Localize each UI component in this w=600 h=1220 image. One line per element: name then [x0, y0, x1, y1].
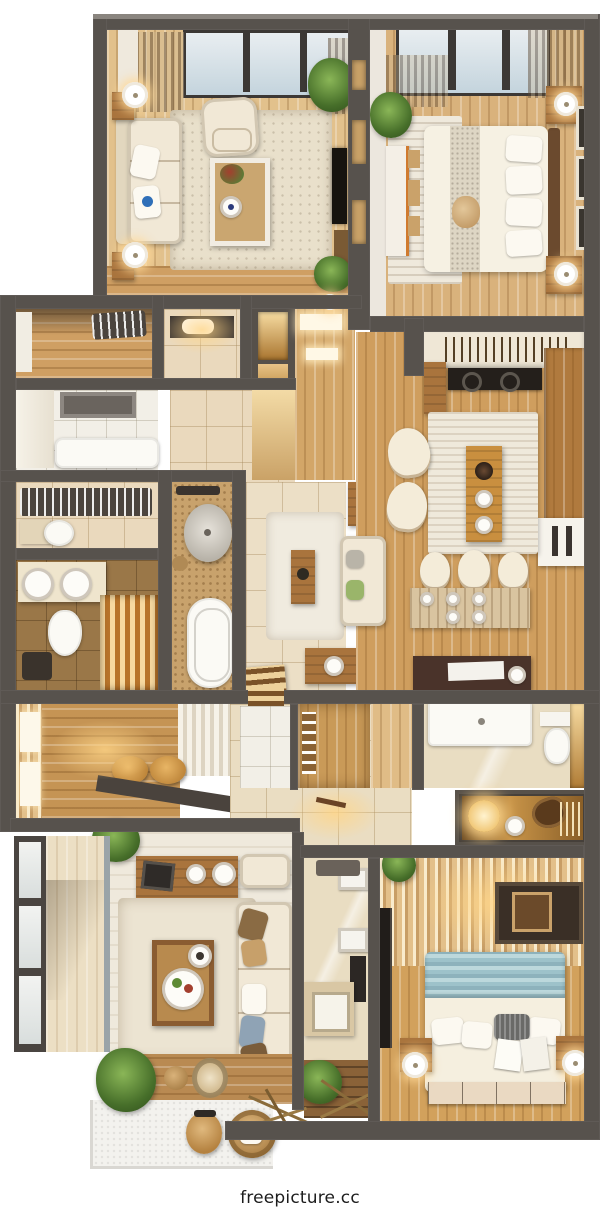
- deck-pot: [164, 1066, 188, 1090]
- floor-lamp: [122, 242, 148, 268]
- window-mullion: [502, 26, 510, 90]
- window-mullion: [448, 26, 456, 90]
- lounge-pillow-gray: [346, 550, 364, 568]
- bed2-teal-blanket: [425, 952, 565, 998]
- wall-outer-left-top: [93, 14, 107, 309]
- closet-ottoman: [44, 520, 74, 546]
- sofa-seam: [238, 968, 290, 970]
- balcony-glass: [19, 842, 41, 898]
- wall-outer-right: [584, 14, 600, 1140]
- potted-plant: [298, 1060, 342, 1104]
- hallway-floor: [295, 309, 355, 480]
- watermark-text: freepicture.cc: [240, 1188, 360, 1208]
- fruit-dots: [172, 978, 182, 988]
- bed-pillow: [505, 229, 543, 257]
- sofa-pillow-tan: [240, 938, 267, 967]
- door-panel-lit: [20, 712, 40, 752]
- floor-lamp: [122, 82, 148, 108]
- fruit-basket: [162, 968, 204, 1010]
- pouf-dark-band: [194, 1110, 216, 1117]
- balcony-glass: [19, 976, 41, 1044]
- decor-plate: [324, 656, 344, 676]
- wall-h-bedroom2-bottom: [225, 1121, 600, 1140]
- deck-vase: [192, 1058, 228, 1098]
- bonsai-dot: [297, 568, 309, 580]
- lounge-cushion-green: [346, 580, 364, 600]
- lit-shelf-unit: [100, 595, 158, 690]
- burner: [462, 372, 482, 392]
- stairs-doorway: [248, 688, 284, 706]
- toilet: [48, 610, 82, 656]
- pantry-lit-niche: [258, 312, 288, 360]
- tray-center-dot: [228, 204, 234, 210]
- ceiling-light-panel: [306, 348, 338, 360]
- wall-art: [408, 216, 420, 236]
- table-lamp: [402, 1052, 428, 1078]
- desk-plate: [212, 862, 236, 886]
- table-plant: [220, 164, 244, 184]
- plate: [446, 610, 460, 624]
- bottle-row: [560, 802, 582, 836]
- balcony-shadow: [46, 880, 104, 1000]
- wall: [290, 704, 298, 790]
- plate: [472, 592, 486, 606]
- wall-h-closet-top: [0, 470, 246, 482]
- wall-entry-powder: [152, 295, 164, 390]
- bath-mat: [22, 652, 52, 680]
- divider-shelf-niche: [352, 200, 366, 244]
- living-room-window-mullion: [243, 30, 250, 92]
- cabinet-handle: [566, 526, 572, 556]
- laptop: [141, 860, 176, 891]
- shower-drain-dot: [204, 529, 211, 536]
- sofa-pillow-white: [242, 984, 266, 1014]
- closet-hanger-rail: [20, 488, 152, 516]
- appliance-box: [338, 928, 368, 952]
- console-mirror: [448, 661, 505, 681]
- art-niche-frame: [512, 892, 552, 932]
- headboard: [548, 128, 560, 272]
- toilet-tank: [540, 712, 574, 726]
- bed2-pillow: [431, 1016, 466, 1045]
- wall-art: [408, 150, 420, 168]
- divider-shelf-niche: [352, 120, 366, 164]
- rattan-pouf: [186, 1112, 222, 1154]
- pillow-blue-dot: [142, 196, 153, 207]
- storage-basket: [150, 756, 186, 784]
- wall-v-family-bedroom2: [292, 832, 304, 1110]
- wardrobe: [386, 146, 409, 256]
- wall-h-below-living: [0, 295, 362, 309]
- dining-chair: [498, 552, 528, 590]
- plate: [446, 592, 460, 606]
- laundry-wall-panel: [16, 390, 54, 468]
- sofa: [128, 118, 182, 244]
- fur-throw: [452, 196, 480, 228]
- hall-wood-strip: [371, 704, 412, 788]
- towel-rack: [302, 712, 316, 774]
- coat-rack: [91, 310, 147, 340]
- bathtub-inner-line: [194, 608, 230, 682]
- toilet: [544, 728, 570, 764]
- serving-bowl: [475, 516, 493, 534]
- serving-bowl: [475, 490, 493, 508]
- potted-plant: [370, 92, 412, 138]
- burner: [500, 372, 520, 392]
- entry-door-panel: [16, 312, 32, 372]
- gray-mat: [316, 860, 360, 876]
- niche-dish: [505, 816, 525, 836]
- bed-pillow: [505, 135, 543, 163]
- laundry-counter-tub: [55, 438, 159, 468]
- glass-door-track: [104, 836, 110, 1052]
- desk-plate: [186, 864, 206, 884]
- dining-chair: [458, 550, 490, 590]
- bath-stool: [172, 556, 188, 571]
- sink-faucet-dot: [478, 718, 485, 725]
- white-cabinet: [538, 518, 584, 566]
- divider-shelf-niche: [352, 60, 366, 90]
- wall-h-mid-long: [0, 690, 600, 704]
- bed2-pillow-gray: [494, 1014, 530, 1040]
- bed-pillow: [505, 165, 542, 195]
- wall-h-laundry-top: [16, 378, 296, 390]
- plate: [472, 610, 486, 624]
- window-bench: [240, 854, 290, 888]
- serving-bowl: [475, 462, 493, 480]
- divider-white-panel: [370, 28, 386, 318]
- footboard-bench: [428, 1082, 566, 1104]
- dining-chair: [420, 552, 450, 590]
- warm-wall-column: [252, 390, 295, 480]
- ceiling-light-panel: [300, 314, 342, 330]
- table-lamp: [554, 92, 578, 116]
- open-book-page: [520, 1037, 550, 1072]
- bed-pillow: [505, 197, 542, 227]
- console-tray: [508, 666, 526, 684]
- wall-v-bath2-left: [412, 704, 424, 790]
- door-panel-lit: [20, 762, 40, 806]
- balcony-glass: [19, 906, 41, 968]
- plate: [420, 592, 434, 606]
- dish-center: [196, 952, 204, 960]
- wall-v-bath-left: [158, 470, 172, 704]
- wall-h-bedroom2-top: [300, 845, 584, 858]
- shower-fixture-bar: [176, 486, 220, 495]
- wall-outer-left-wing: [0, 295, 16, 832]
- fruit-dots: [184, 984, 193, 993]
- potted-plant: [314, 256, 352, 292]
- wall-art: [408, 180, 420, 206]
- ceiling-vent-unit: [60, 392, 136, 418]
- open-book-page: [494, 1038, 524, 1071]
- living-room-window-mullion: [300, 30, 307, 92]
- wall-powder-pantry: [240, 295, 252, 390]
- living-room-deck-strip: [107, 266, 348, 295]
- floor-plan-render: freepicture.cc: [0, 0, 600, 1220]
- sink-basin: [22, 568, 54, 600]
- potted-plant: [96, 1048, 156, 1112]
- wall-kitchen-stub: [404, 318, 424, 376]
- tv-screen: [332, 148, 347, 224]
- wall-bedroom-bottom: [370, 316, 584, 332]
- white-drape-band: [178, 704, 232, 776]
- wall-light-top-edge: [93, 14, 598, 19]
- table-lamp: [554, 262, 578, 286]
- niche-lamp: [468, 800, 500, 832]
- bed2-pillow: [461, 1021, 493, 1050]
- wall-v-bedroom2-left: [368, 858, 380, 1140]
- wall-h-sink-room: [16, 548, 158, 560]
- decor-board: [424, 362, 446, 414]
- powder-sink-basin: [182, 319, 214, 334]
- sink-basin: [60, 568, 92, 600]
- small-tiled-room: [240, 706, 290, 788]
- wall-h-lower-wing: [10, 818, 300, 832]
- armchair-seat-line: [212, 128, 252, 152]
- wall-v-bath-right: [232, 470, 246, 704]
- cabinet-handle: [552, 526, 558, 556]
- square-sink: [312, 992, 350, 1032]
- kitchen-cabinet-column: [544, 348, 584, 520]
